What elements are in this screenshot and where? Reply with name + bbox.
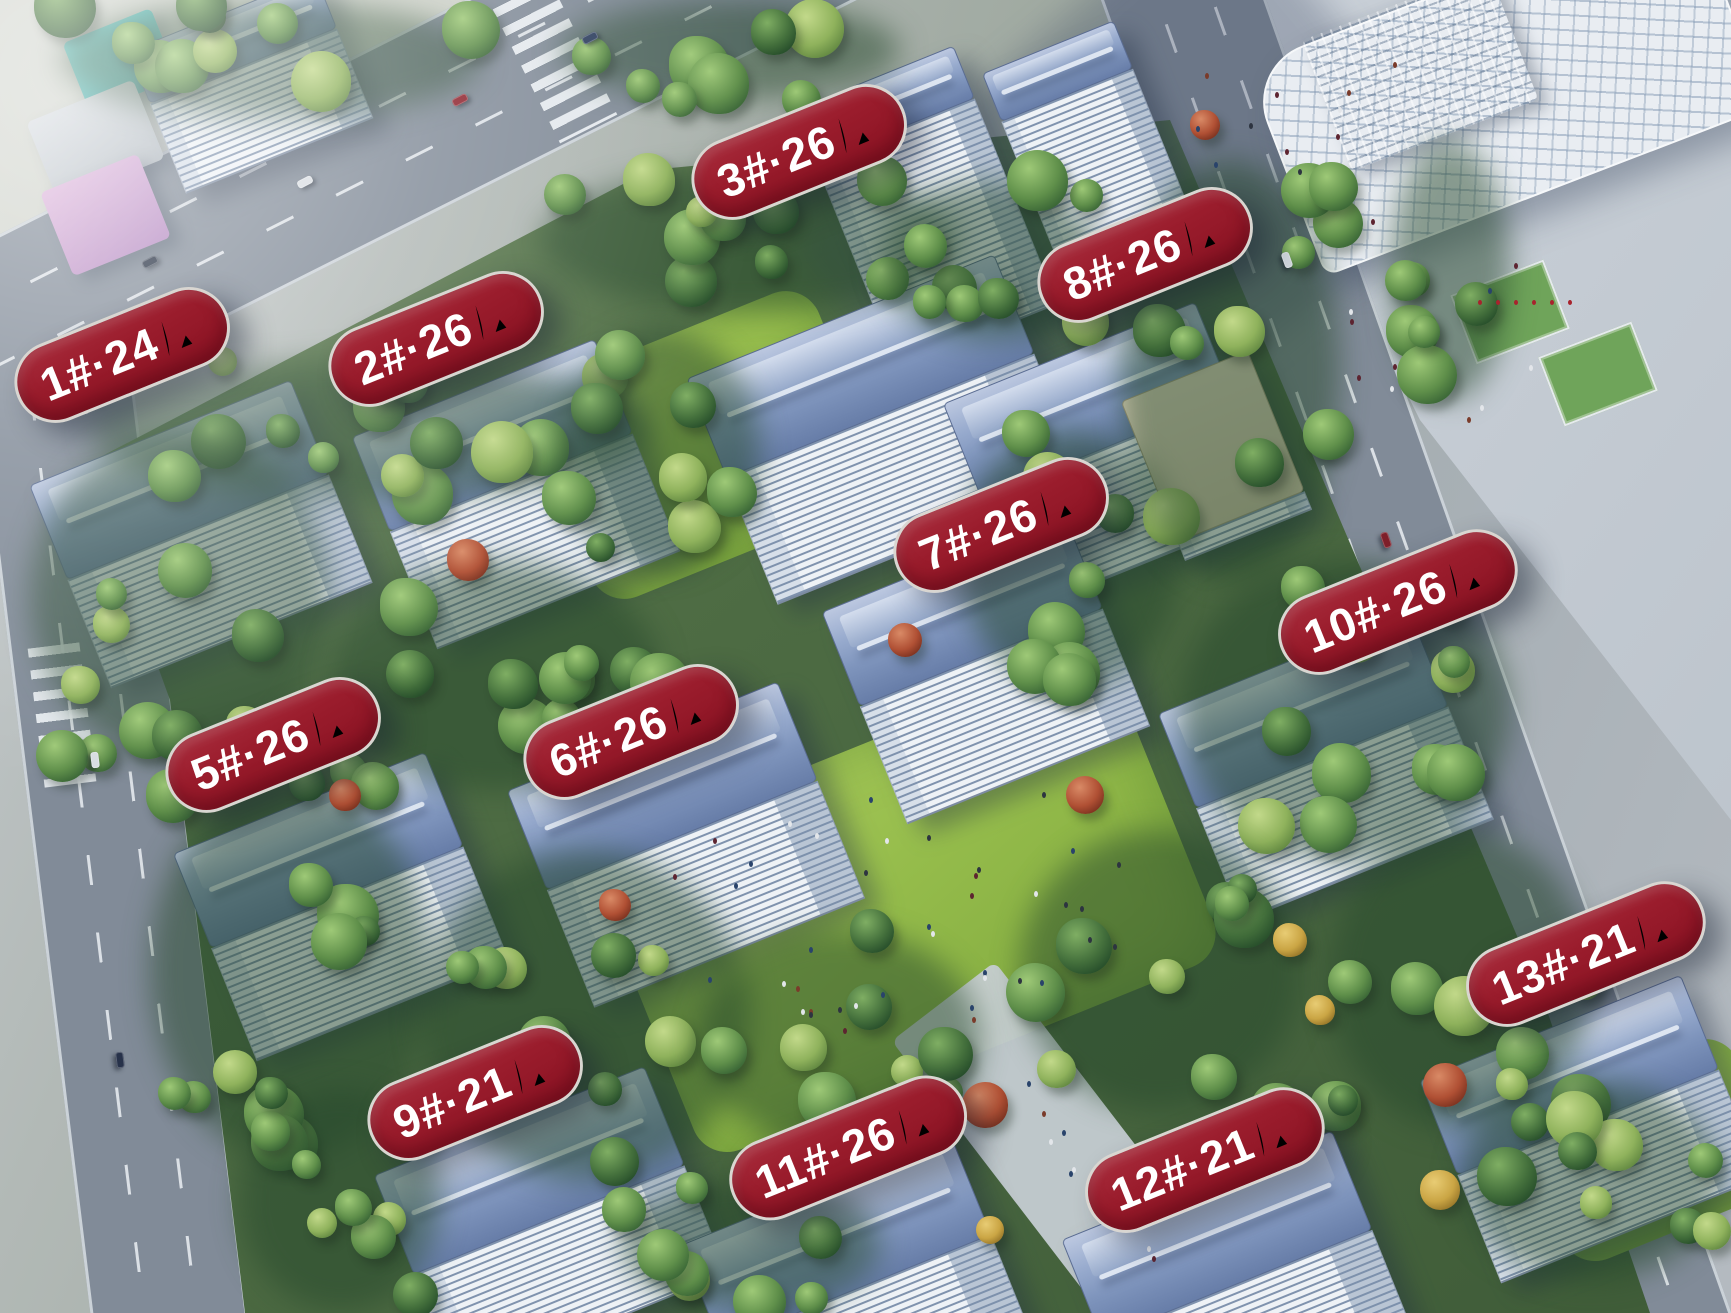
tree	[1235, 438, 1284, 487]
tree	[1023, 452, 1074, 503]
tree	[1328, 960, 1372, 1004]
tree	[1006, 963, 1065, 1022]
tree	[1530, 960, 1570, 1000]
person-figure	[1110, 1205, 1114, 1211]
tree	[158, 543, 212, 597]
tree	[292, 1150, 321, 1179]
tree	[626, 69, 660, 103]
tree	[686, 196, 717, 227]
tree	[393, 1272, 439, 1313]
tree	[1037, 1050, 1076, 1089]
tree	[846, 984, 892, 1030]
tree	[213, 1050, 257, 1094]
tree	[871, 1109, 914, 1152]
aerial-render-scene	[0, 0, 1731, 1313]
tree	[571, 383, 623, 435]
tree	[1069, 562, 1105, 598]
person-figure	[1196, 126, 1200, 132]
tree	[1312, 743, 1372, 803]
tree	[1303, 409, 1353, 459]
person-figure	[1249, 123, 1253, 129]
tree	[442, 1, 500, 59]
person-figure	[1480, 405, 1484, 411]
person-figure	[1371, 219, 1375, 225]
person-figure	[1205, 73, 1209, 79]
tree	[670, 382, 716, 428]
tree	[61, 666, 99, 704]
tree	[152, 710, 203, 761]
person-figure	[972, 1017, 976, 1023]
tree	[638, 945, 669, 976]
person-figure	[1347, 90, 1351, 96]
tree	[289, 764, 326, 801]
tree	[1331, 613, 1381, 663]
flag-marker	[1496, 300, 1500, 305]
tree	[232, 609, 285, 662]
masterplan-canvas: 1#·242#·263#·265#·266#·267#·268#·269#·21…	[0, 0, 1731, 1313]
person-figure	[885, 838, 889, 844]
tree	[518, 1016, 571, 1069]
tree	[93, 606, 130, 643]
person-figure	[1393, 62, 1397, 68]
person-figure	[1088, 937, 1092, 943]
person-figure	[749, 861, 753, 867]
tree	[1070, 179, 1103, 212]
tree	[1214, 306, 1265, 357]
tree	[904, 224, 948, 268]
tree	[751, 9, 796, 54]
tree	[795, 1282, 828, 1313]
flag-marker	[1532, 300, 1536, 305]
tree	[158, 1077, 191, 1110]
tree	[1496, 1068, 1528, 1100]
tree	[307, 1208, 337, 1238]
tree	[410, 417, 462, 469]
tree	[251, 1111, 290, 1150]
tree	[1420, 1170, 1460, 1210]
tree	[488, 659, 538, 709]
tree	[637, 1229, 689, 1281]
tree	[146, 769, 199, 822]
tree	[112, 22, 154, 64]
tree	[1511, 1103, 1549, 1141]
tree	[591, 933, 636, 978]
tree	[148, 450, 201, 503]
tree	[1191, 1054, 1237, 1100]
tree	[1438, 646, 1471, 679]
tree	[659, 453, 707, 501]
tree	[850, 909, 894, 953]
flag-marker	[1568, 300, 1572, 305]
tree	[447, 539, 490, 582]
tree	[96, 578, 128, 610]
tree	[595, 330, 645, 380]
tree-grove	[560, 330, 760, 570]
tree	[1273, 923, 1307, 957]
tree	[266, 414, 300, 448]
tree	[1149, 959, 1184, 994]
tree	[280, 728, 313, 761]
tree	[1385, 260, 1426, 301]
person-figure	[1275, 92, 1279, 98]
tree	[1096, 494, 1134, 532]
tree	[291, 51, 352, 112]
tree	[978, 278, 1019, 319]
tree	[586, 533, 615, 562]
tree	[289, 863, 333, 907]
flag-marker	[1514, 300, 1518, 305]
tree	[208, 347, 237, 376]
person-figure	[983, 975, 987, 981]
tree	[1434, 976, 1494, 1036]
person-figure	[1467, 417, 1471, 423]
tree	[1043, 653, 1096, 706]
tree	[1427, 744, 1485, 802]
tree	[36, 730, 88, 782]
person-figure	[843, 1028, 847, 1034]
tree	[602, 1187, 646, 1231]
tree	[737, 1162, 784, 1209]
tree	[913, 285, 947, 319]
tree	[1305, 995, 1335, 1025]
tree	[799, 1216, 842, 1259]
flag-marker	[1550, 300, 1554, 305]
tree	[1420, 567, 1455, 602]
tree	[782, 80, 821, 119]
tree	[193, 29, 237, 73]
tree	[1062, 298, 1110, 346]
tree	[353, 764, 399, 810]
tree	[572, 37, 610, 75]
tree	[1002, 410, 1050, 458]
tree	[630, 653, 690, 713]
tree	[1238, 798, 1294, 854]
person-figure	[970, 1005, 974, 1011]
tree	[1262, 707, 1311, 756]
tree	[1170, 326, 1204, 360]
tree	[962, 1082, 1009, 1129]
tree	[329, 779, 362, 812]
tree	[588, 1072, 622, 1106]
tree	[308, 442, 339, 473]
tree	[1328, 1085, 1359, 1116]
tree	[755, 245, 789, 279]
tree	[450, 1081, 484, 1115]
tree	[753, 188, 799, 234]
tree	[1455, 282, 1498, 325]
tree-grove	[1120, 160, 1340, 580]
tree	[335, 1189, 372, 1226]
flag-marker	[1478, 300, 1482, 305]
person-figure	[1069, 1171, 1073, 1177]
tree	[255, 1077, 288, 1110]
tree	[645, 1016, 696, 1067]
tree	[544, 174, 586, 216]
tree	[676, 1172, 708, 1204]
person-figure	[734, 883, 738, 889]
tree	[257, 3, 298, 44]
tree	[707, 467, 756, 516]
tree	[542, 699, 580, 737]
person-figure	[1214, 162, 1218, 168]
tree	[1300, 796, 1356, 852]
tree	[386, 650, 434, 698]
person-figure	[1049, 1139, 1053, 1145]
tree	[623, 153, 675, 205]
person-figure	[1336, 134, 1340, 140]
tree	[77, 370, 106, 399]
tree	[1190, 110, 1220, 140]
tree	[366, 367, 403, 404]
tree	[1688, 1143, 1723, 1178]
tree	[590, 1137, 639, 1186]
tree	[780, 1024, 827, 1071]
tree	[1215, 886, 1249, 920]
tree	[1580, 1186, 1612, 1218]
tree	[380, 578, 438, 636]
person-figure	[1488, 288, 1492, 294]
tree	[311, 913, 368, 970]
tree	[1558, 1132, 1597, 1171]
person-figure	[809, 947, 813, 953]
tree	[446, 951, 478, 983]
tree	[688, 53, 748, 113]
tree-grove	[420, 850, 750, 1180]
tree	[1477, 1147, 1536, 1206]
tree	[1408, 316, 1440, 348]
tree	[1423, 1063, 1467, 1107]
person-figure	[1018, 978, 1022, 984]
tree	[1066, 776, 1104, 814]
tree	[1007, 150, 1068, 211]
person-figure	[970, 893, 974, 899]
tree	[1693, 1212, 1731, 1250]
tree	[1281, 566, 1325, 610]
tree	[888, 623, 922, 657]
tree	[226, 706, 264, 744]
tree	[662, 82, 697, 117]
tree	[1056, 918, 1112, 974]
tree	[798, 1072, 856, 1130]
person-figure	[869, 797, 873, 803]
tree	[471, 421, 533, 483]
person-figure	[673, 874, 677, 880]
person-figure	[1390, 386, 1394, 392]
person-figure	[1357, 375, 1361, 381]
tree	[542, 471, 596, 525]
tree	[1309, 162, 1358, 211]
tree	[1397, 345, 1457, 405]
tree	[933, 1077, 963, 1107]
tree	[918, 1027, 972, 1081]
tree	[857, 156, 907, 206]
tree	[599, 889, 631, 921]
tree	[701, 1027, 748, 1074]
